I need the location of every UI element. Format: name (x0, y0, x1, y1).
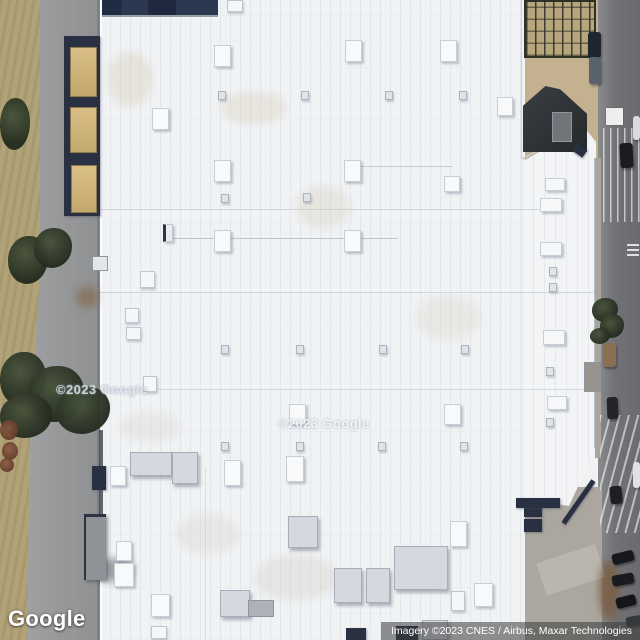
imagery-attribution: Imagery ©2023 CNES / Airbus, Maxar Techn… (381, 622, 640, 640)
sidewalk-block (584, 362, 601, 392)
tree (0, 98, 30, 150)
hvac-unit-dark (346, 628, 366, 640)
roof-stain (176, 514, 240, 554)
pavement-path (536, 544, 605, 595)
roof-seam (521, 0, 522, 158)
hvac-unit (543, 330, 565, 345)
roof-vent (221, 345, 229, 354)
trailer (70, 47, 97, 97)
car (633, 462, 640, 488)
hvac-unit (540, 242, 562, 256)
dirt-patch-parking (599, 560, 619, 620)
roof-duct (163, 224, 173, 242)
hvac-unit (126, 327, 141, 340)
hvac-unit-large (220, 590, 250, 617)
roof-seam (205, 468, 206, 640)
road-stripe-zone-north (603, 128, 640, 222)
red-bush (0, 420, 18, 440)
truck-brown (603, 343, 616, 367)
dock-structure (92, 466, 106, 490)
hvac-unit (152, 108, 169, 130)
hvac-unit (545, 178, 565, 191)
parked-car (611, 550, 635, 566)
hvac-unit (444, 176, 460, 192)
hvac-unit (345, 40, 362, 62)
hvac-unit-large (288, 516, 318, 548)
hvac-unit (547, 396, 567, 410)
dirt-patch (76, 286, 98, 308)
roof-stain (222, 92, 286, 124)
roof-pipe-line (352, 166, 452, 167)
car (607, 397, 619, 419)
hvac-unit (497, 97, 513, 116)
roof-stain (108, 52, 152, 106)
roof-vent (378, 442, 386, 451)
satellite-map-canvas[interactable]: ©2023 Google ©2023 Google Google Imagery… (0, 0, 640, 640)
hvac-unit (450, 521, 467, 547)
car (609, 485, 623, 504)
roof-edge-diagonal (562, 479, 596, 524)
hvac-unit (227, 0, 243, 12)
roof-vent (296, 345, 304, 354)
building-roof-block (552, 112, 572, 142)
trailer (70, 107, 97, 153)
parked-car (611, 572, 635, 587)
roof-vent (303, 193, 311, 202)
roof-vent (460, 442, 468, 451)
hvac-unit (140, 271, 155, 288)
roof-vent (221, 442, 229, 451)
roof-vent (459, 91, 467, 100)
hvac-gray-extension (248, 600, 274, 617)
red-bush (0, 458, 14, 472)
google-logo[interactable]: Google (8, 606, 86, 632)
hvac-unit (151, 594, 170, 617)
roof-vent (546, 418, 554, 427)
hvac-unit (286, 456, 304, 482)
metal-framework-structure (524, 0, 596, 58)
roof-seam (100, 209, 558, 210)
hvac-unit (344, 160, 361, 182)
roof-vent (385, 91, 393, 100)
hvac-unit-large (334, 568, 362, 603)
hvac-unit (344, 230, 361, 252)
loading-canopy (84, 514, 106, 580)
tree (34, 228, 72, 268)
trailer (71, 165, 97, 213)
hvac-unit (224, 460, 241, 486)
roof-vent (549, 283, 557, 292)
hvac-unit (451, 591, 465, 611)
hvac-unit-large (172, 452, 198, 484)
hvac-unit (110, 466, 126, 486)
roof-vent (549, 267, 557, 276)
hvac-unit (125, 308, 139, 323)
hvac-unit (214, 45, 231, 67)
roof-vent (379, 345, 387, 354)
hvac-unit (214, 160, 231, 182)
roof-vent (296, 442, 304, 451)
roof-vent (218, 91, 226, 100)
hvac-unit (540, 198, 562, 212)
roof-vent (461, 345, 469, 354)
roof-seam (100, 389, 592, 390)
truck-trailer (589, 57, 601, 84)
hvac-unit (151, 626, 167, 639)
roof-seam (100, 292, 597, 293)
roof-stain (120, 412, 180, 442)
roof-edge-strip (516, 498, 560, 508)
car (633, 116, 640, 140)
hvac-unit (114, 563, 134, 587)
truck-cab (588, 32, 601, 58)
hvac-unit (214, 230, 231, 252)
utility-box (92, 256, 108, 271)
hvac-unit-large (366, 568, 390, 603)
hvac-unit-large (394, 546, 448, 590)
roof-vent (546, 367, 554, 376)
tree (590, 328, 610, 344)
scene-objects-layer (0, 0, 640, 640)
road-marking-small (627, 244, 639, 256)
google-watermark: ©2023 Google (56, 382, 148, 397)
hvac-unit-large (130, 452, 172, 476)
dumpster (524, 519, 542, 532)
hvac-unit (116, 541, 132, 561)
roof-stain (254, 556, 338, 600)
roof-pipe-line (170, 238, 398, 239)
road-marking (606, 108, 623, 125)
roof-vent (221, 194, 229, 203)
google-watermark: ©2023 Google (278, 416, 370, 431)
hvac-unit (444, 404, 461, 425)
car (619, 143, 633, 169)
roof-vent (301, 91, 309, 100)
hvac-unit (474, 583, 493, 607)
hvac-unit (440, 40, 457, 62)
roof-stain (416, 296, 480, 340)
